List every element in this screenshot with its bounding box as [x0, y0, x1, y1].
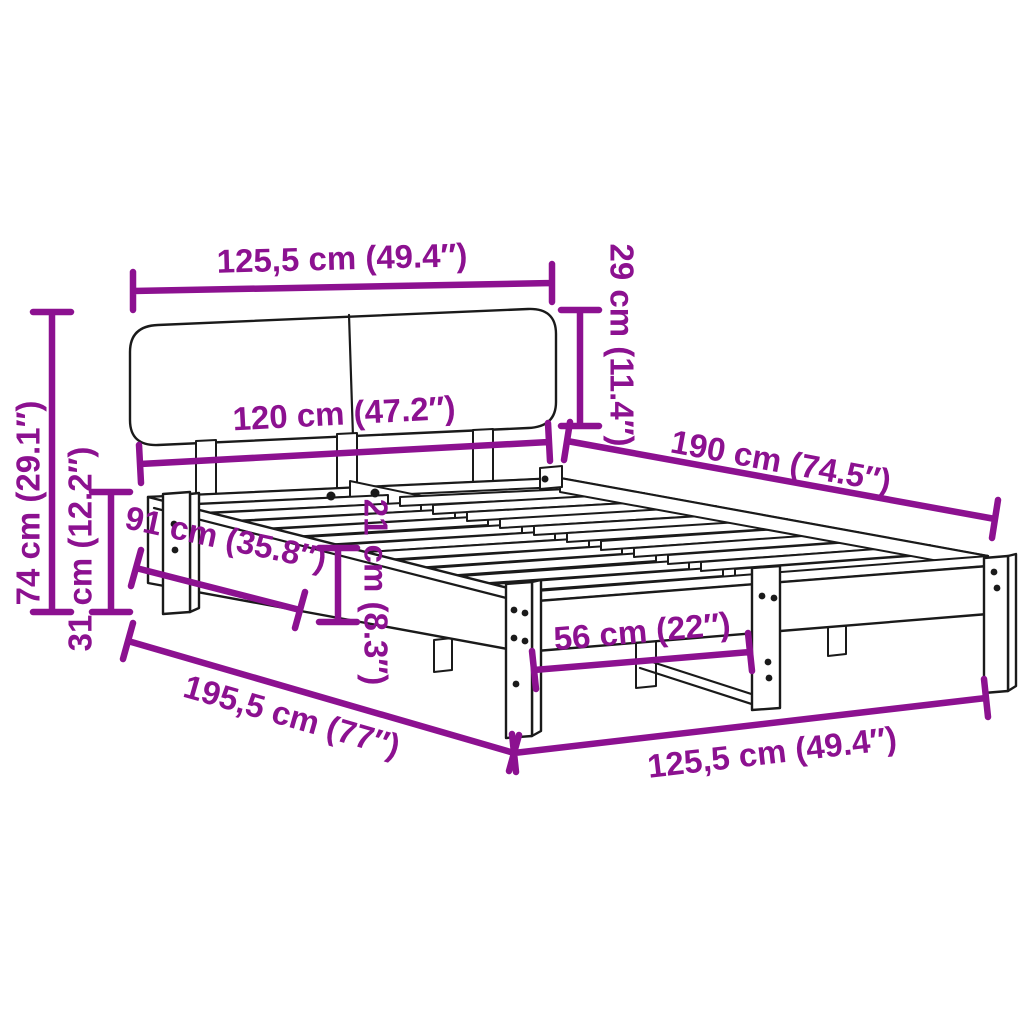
dimension-diagram: 125,5 cm (49.4″) 29 cm (11.4″) 120 cm (4… — [0, 0, 1024, 1024]
dimension-headboard-height: 29 cm (11.4″) — [561, 244, 641, 447]
bed-frame-drawing — [130, 309, 1016, 738]
screw-hole — [513, 681, 520, 688]
bolt-cap — [371, 489, 380, 498]
cross-brace — [640, 668, 764, 708]
screw-hole — [991, 569, 998, 576]
dimension-label: 190 cm (74.5″) — [668, 423, 894, 500]
screw-hole — [511, 635, 518, 642]
bolt-cap — [542, 476, 549, 483]
screw-hole — [766, 675, 773, 682]
dimension-headboard-width: 125,5 cm (49.4″) — [133, 236, 552, 310]
screw-hole — [522, 610, 529, 617]
screw-hole — [994, 585, 1001, 592]
screw-hole — [511, 607, 518, 614]
dimension-overall-length: 195,5 cm (77″) — [123, 623, 519, 771]
dimension-frame-height: 31 cm (12.2″) — [62, 447, 131, 652]
screw-hole — [759, 593, 766, 600]
dimension-line — [561, 310, 599, 426]
headboard-post-right — [473, 429, 493, 485]
bed-frame-diagram-svg: 125,5 cm (49.4″) 29 cm (11.4″) 120 cm (4… — [0, 0, 1024, 1024]
dimension-label: 125,5 cm (49.4″) — [645, 719, 898, 785]
dimension-label: 21 cm (8.3″) — [358, 499, 395, 685]
dimension-overall-width: 125,5 cm (49.4″) — [512, 679, 988, 785]
support-block — [828, 624, 846, 656]
bolt-cap — [327, 492, 336, 501]
dimension-label: 74 cm (29.1″) — [10, 401, 47, 606]
screw-hole — [765, 659, 772, 666]
foot-left-leg — [506, 582, 532, 738]
dimension-label: 31 cm (12.2″) — [62, 447, 99, 652]
dimension-label: 29 cm (11.4″) — [604, 244, 641, 447]
screw-hole — [771, 595, 778, 602]
foot-center-leg — [752, 566, 780, 710]
side-rail-support-block — [434, 638, 452, 672]
dimension-label: 125,5 cm (49.4″) — [216, 236, 468, 280]
foot-right-leg — [984, 556, 1008, 693]
screw-hole — [172, 547, 179, 554]
screw-hole — [522, 638, 529, 645]
